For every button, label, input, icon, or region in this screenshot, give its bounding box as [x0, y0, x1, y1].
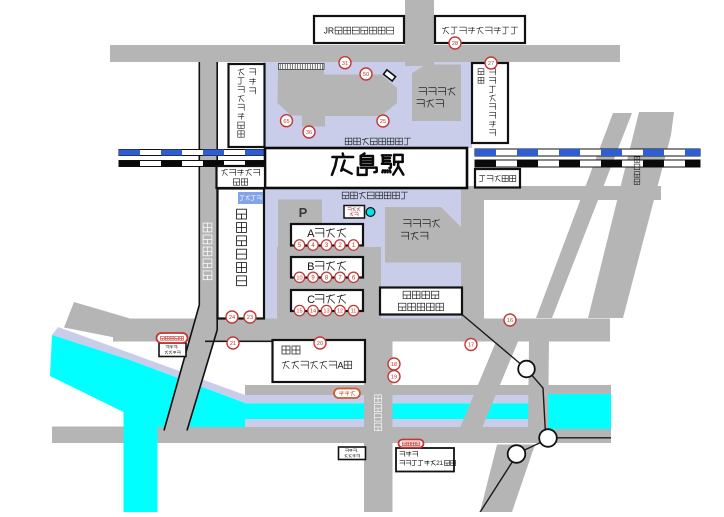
svg-text:50: 50: [363, 72, 369, 78]
svg-text:36: 36: [306, 130, 312, 136]
svg-text:19: 19: [391, 375, 397, 381]
svg-text:C: C: [307, 294, 315, 306]
svg-text:P: P: [299, 205, 308, 220]
svg-text:24: 24: [229, 315, 235, 321]
svg-text:16: 16: [507, 318, 513, 324]
svg-text:65: 65: [283, 119, 289, 125]
svg-text:B: B: [307, 261, 314, 273]
svg-text:31: 31: [342, 61, 348, 67]
svg-text:13: 13: [323, 309, 329, 315]
svg-text:A: A: [337, 359, 344, 370]
svg-text:12: 12: [337, 309, 343, 315]
svg-text:27: 27: [488, 61, 494, 67]
svg-text:23: 23: [247, 315, 253, 321]
svg-text:20: 20: [317, 341, 323, 347]
svg-text:28: 28: [452, 41, 458, 47]
svg-text:18: 18: [391, 362, 397, 368]
svg-text:21: 21: [436, 460, 443, 467]
svg-text:A: A: [307, 228, 315, 240]
svg-text:15: 15: [296, 309, 302, 315]
svg-text:17: 17: [468, 343, 474, 349]
svg-text:25: 25: [380, 119, 386, 125]
svg-text:JR: JR: [324, 26, 335, 36]
svg-text:11: 11: [351, 309, 357, 315]
svg-text:10: 10: [296, 275, 302, 281]
svg-text:14: 14: [310, 309, 316, 315]
svg-text:21: 21: [230, 341, 236, 347]
